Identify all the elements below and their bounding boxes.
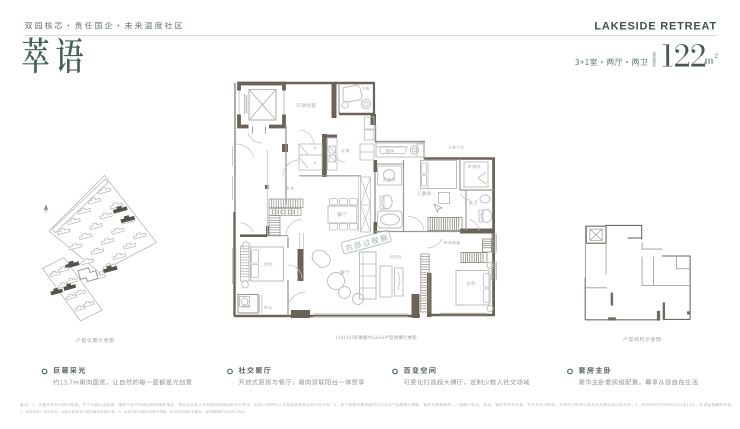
- svg-text:LAKESIDE RETREAT: LAKESIDE RETREAT: [594, 21, 717, 33]
